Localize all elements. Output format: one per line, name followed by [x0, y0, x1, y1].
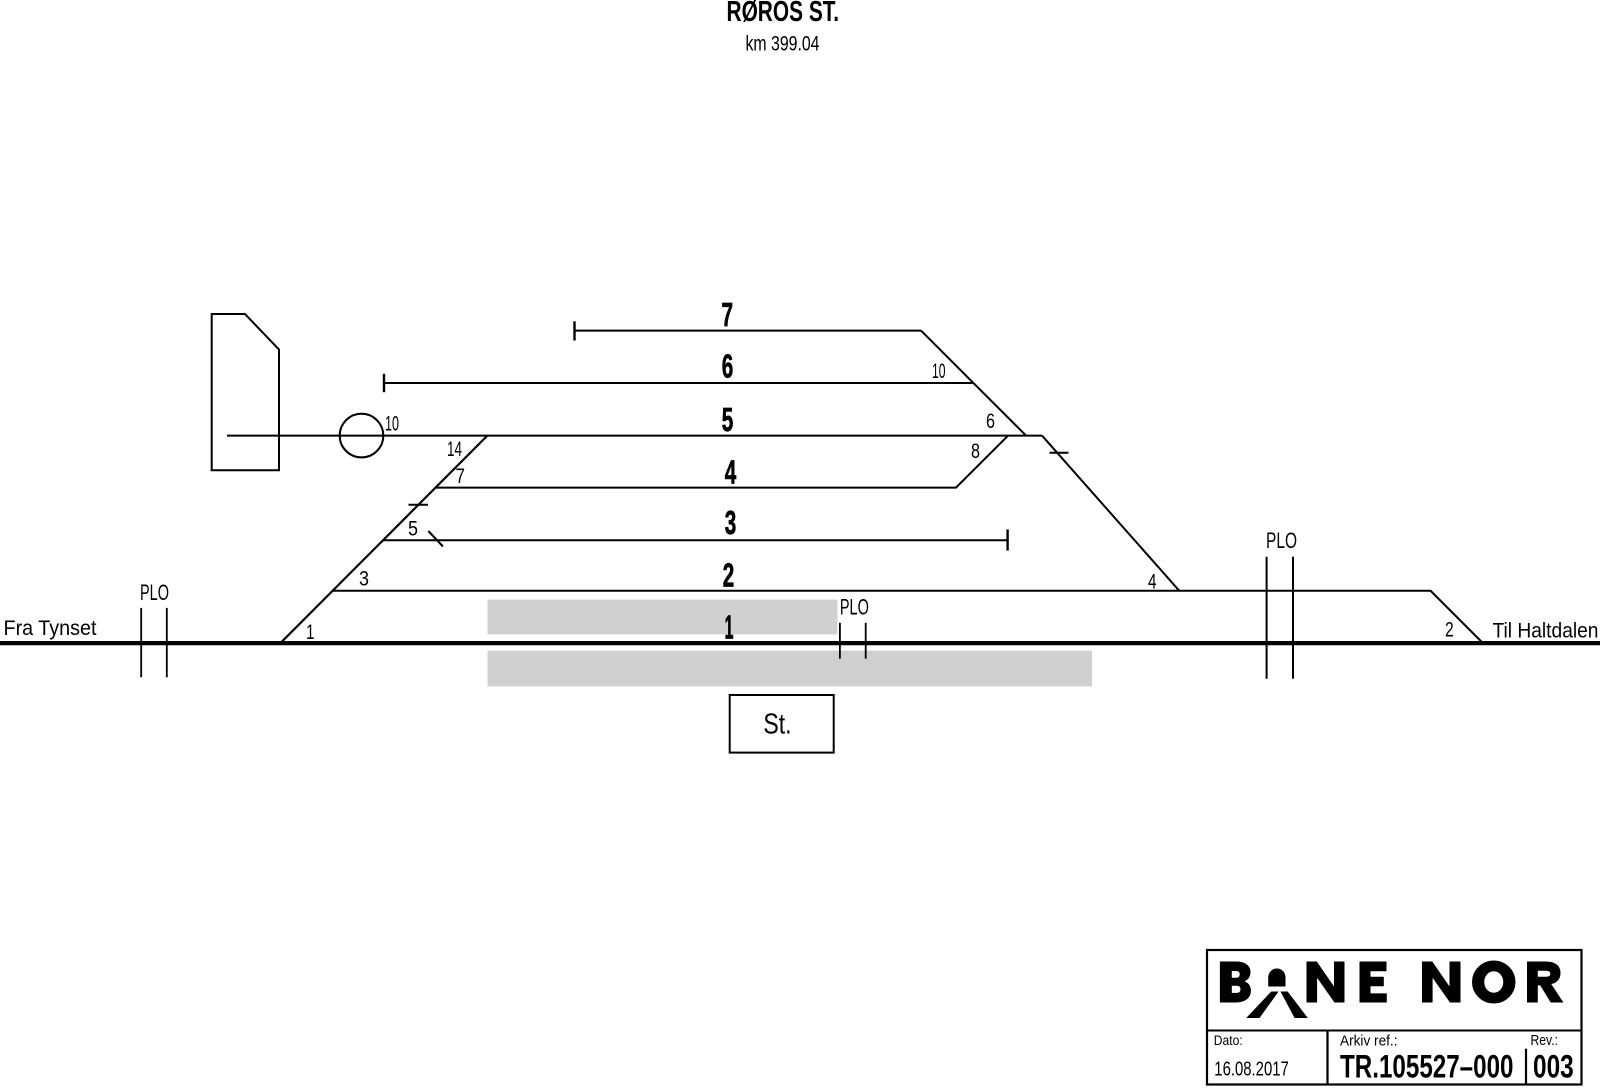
svg-text:1: 1 [725, 609, 734, 646]
svg-text:Rev.:: Rev.: [1531, 1033, 1559, 1049]
svg-text:10: 10 [932, 359, 946, 383]
svg-text:7: 7 [456, 464, 466, 488]
svg-text:7: 7 [722, 296, 734, 333]
svg-text:003: 003 [1533, 1048, 1574, 1084]
svg-text:1: 1 [306, 620, 315, 644]
svg-text:14: 14 [447, 437, 462, 461]
svg-text:Arkiv ref.:: Arkiv ref.: [1340, 1034, 1398, 1050]
svg-text:Dato:: Dato: [1214, 1032, 1243, 1048]
svg-text:km 399.04: km 399.04 [746, 31, 820, 56]
svg-text:10: 10 [385, 412, 399, 436]
svg-text:PLO: PLO [840, 595, 869, 620]
svg-text:2: 2 [1445, 617, 1454, 641]
svg-text:3: 3 [725, 504, 737, 541]
svg-text:4: 4 [1148, 570, 1157, 594]
svg-text:TR.105527–000: TR.105527–000 [1340, 1048, 1514, 1084]
svg-text:6: 6 [722, 347, 734, 384]
svg-text:PLO: PLO [1266, 528, 1297, 553]
svg-text:Fra Tynset: Fra Tynset [4, 615, 97, 640]
svg-text:RØROS ST.: RØROS ST. [727, 0, 840, 28]
svg-text:5: 5 [722, 401, 734, 438]
svg-text:St.: St. [763, 709, 791, 741]
svg-text:6: 6 [986, 409, 995, 433]
svg-text:Til Haltdalen: Til Haltdalen [1493, 618, 1599, 643]
svg-text:8: 8 [971, 439, 980, 463]
svg-text:PLO: PLO [140, 580, 169, 605]
svg-text:3: 3 [359, 566, 369, 590]
svg-text:16.08.2017: 16.08.2017 [1214, 1058, 1289, 1081]
svg-text:2: 2 [723, 556, 735, 593]
svg-text:4: 4 [725, 453, 737, 490]
svg-text:5: 5 [408, 516, 418, 540]
